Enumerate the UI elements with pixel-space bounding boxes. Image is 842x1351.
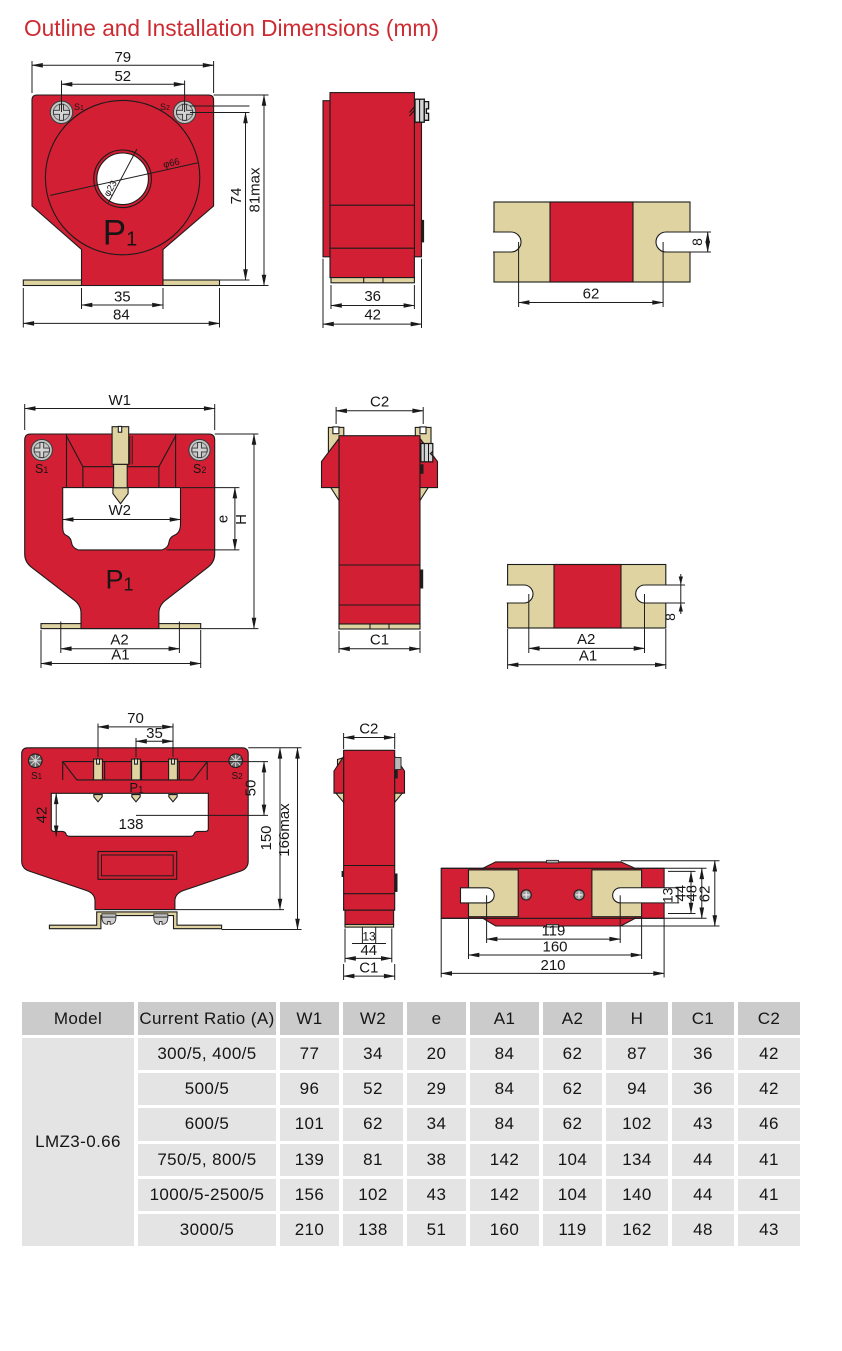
svg-text:C2: C2 [359,721,378,738]
svg-text:150: 150 [258,825,275,850]
svg-text:119: 119 [541,923,565,940]
svg-text:C1: C1 [359,959,378,976]
svg-text:A2: A2 [577,631,595,648]
svg-text:35: 35 [114,289,131,306]
svg-text:160: 160 [542,939,567,956]
svg-text:138: 138 [118,816,143,833]
svg-text:S1: S1 [31,771,43,782]
svg-text:42: 42 [364,307,381,324]
svg-text:35: 35 [146,725,163,742]
svg-text:42: 42 [34,807,51,824]
svg-text:62: 62 [697,886,714,903]
svg-text:S1: S1 [35,462,48,476]
svg-text:e: e [215,515,232,523]
svg-text:W2: W2 [108,502,131,519]
svg-text:44: 44 [360,942,377,959]
svg-text:50: 50 [243,780,260,797]
svg-text:A1: A1 [579,648,597,665]
svg-text:8: 8 [662,613,678,621]
svg-text:A1: A1 [111,646,129,663]
svg-text:62: 62 [583,286,600,303]
svg-text:210: 210 [540,957,565,974]
svg-text:74: 74 [228,188,245,205]
svg-text:S2: S2 [232,771,244,782]
svg-text:70: 70 [127,710,144,727]
svg-text:W1: W1 [108,392,131,409]
svg-text:S2: S2 [193,462,206,476]
svg-text:H: H [233,514,250,525]
svg-text:81max: 81max [247,167,264,213]
svg-text:166max: 166max [276,803,293,857]
svg-text:C2: C2 [370,394,389,411]
svg-text:79: 79 [114,49,131,66]
svg-text:C1: C1 [370,632,389,649]
svg-text:52: 52 [114,68,131,85]
svg-text:84: 84 [113,307,130,324]
svg-text:36: 36 [364,288,381,305]
svg-text:8: 8 [689,238,705,246]
